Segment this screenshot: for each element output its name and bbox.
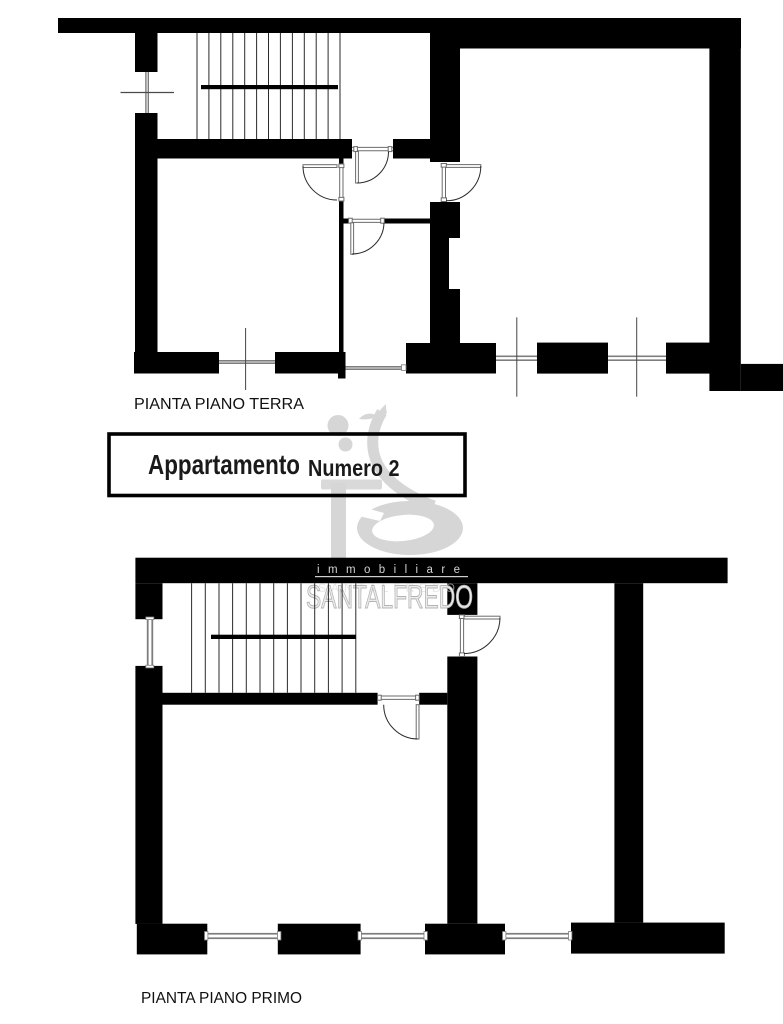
svg-text:PIANTA PIANO PRIMO: PIANTA PIANO PRIMO (141, 990, 302, 1007)
svg-text:SANTALFREDO: SANTALFREDO (306, 579, 473, 615)
svg-text:Appartamento: Appartamento (148, 449, 300, 480)
svg-text:PIANTA PIANO TERRA: PIANTA PIANO TERRA (134, 396, 305, 413)
svg-text:Numero 2: Numero 2 (308, 455, 400, 481)
